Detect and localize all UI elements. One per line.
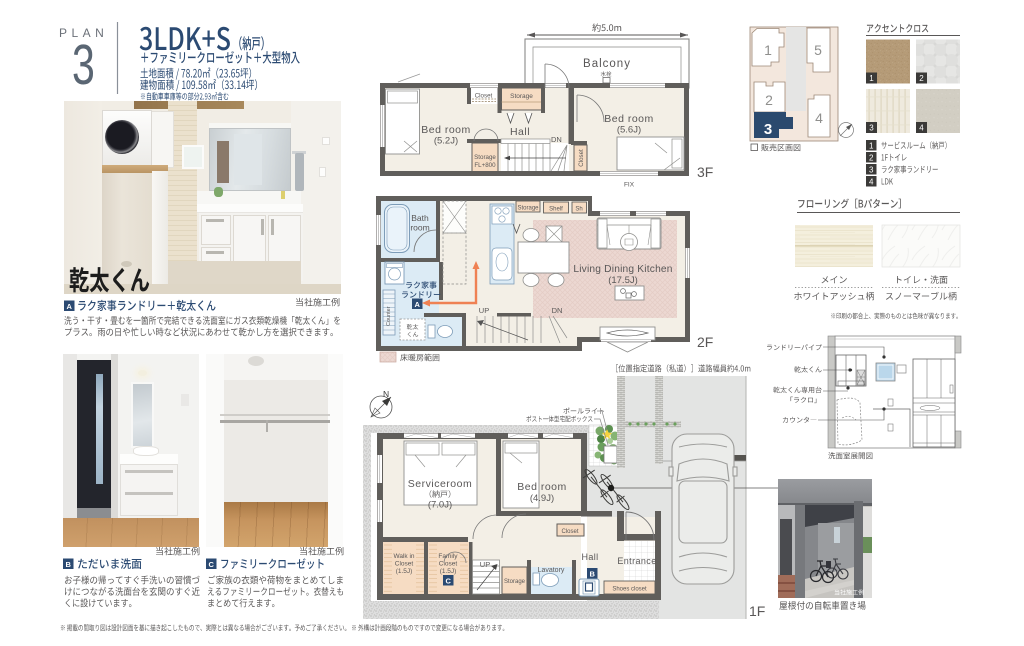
- svg-text:4: 4: [919, 124, 924, 133]
- svg-text:Hall: Hall: [581, 552, 598, 562]
- svg-text:2: 2: [919, 74, 924, 83]
- svg-text:Storage: Storage: [517, 206, 539, 212]
- svg-text:Closet: Closet: [395, 561, 414, 568]
- svg-text:Entrance: Entrance: [617, 556, 656, 566]
- svg-text:Walk in: Walk in: [393, 553, 414, 560]
- svg-text:Bed room: Bed room: [517, 481, 567, 493]
- svg-text:Lavatory: Lavatory: [538, 567, 565, 574]
- svg-text:Closet: Closet: [561, 529, 578, 535]
- svg-text:Balcony: Balcony: [583, 58, 631, 70]
- svg-text:(7.0J): (7.0J): [428, 500, 452, 511]
- svg-text:(5.6J): (5.6J): [617, 125, 641, 136]
- svg-text:1: 1: [869, 142, 874, 151]
- svg-text:1: 1: [764, 42, 772, 58]
- svg-text:A: A: [414, 300, 420, 309]
- svg-text:(5.2J): (5.2J): [434, 136, 458, 147]
- svg-text:Storage: Storage: [504, 579, 526, 585]
- svg-text:Closet: Closet: [475, 93, 493, 100]
- svg-text:FIX: FIX: [624, 182, 635, 189]
- svg-text:(1.5J): (1.5J): [396, 568, 413, 575]
- svg-text:4: 4: [869, 178, 874, 187]
- svg-text:(17.5J): (17.5J): [608, 275, 638, 286]
- svg-text:Storage: Storage: [474, 154, 496, 161]
- svg-text:3F: 3F: [697, 164, 713, 180]
- svg-text:Hall: Hall: [510, 126, 530, 138]
- svg-text:DN: DN: [551, 135, 562, 144]
- svg-text:FL+800: FL+800: [474, 162, 496, 169]
- svg-text:1: 1: [869, 74, 874, 83]
- svg-text:4: 4: [815, 110, 823, 126]
- svg-text:5: 5: [814, 42, 822, 58]
- svg-text:3: 3: [764, 121, 772, 138]
- svg-text:2F: 2F: [697, 334, 713, 350]
- svg-text:3: 3: [869, 166, 874, 175]
- svg-text:2: 2: [869, 154, 874, 163]
- svg-text:Bed room: Bed room: [421, 124, 471, 136]
- svg-text:Bath: Bath: [411, 213, 429, 223]
- svg-text:(1.5J): (1.5J): [440, 568, 457, 575]
- svg-text:B: B: [65, 560, 71, 569]
- svg-text:Shoes closet: Shoes closet: [612, 587, 647, 593]
- svg-text:Serviceroom: Serviceroom: [408, 478, 472, 490]
- svg-text:C: C: [208, 560, 214, 569]
- svg-text:C: C: [445, 577, 451, 586]
- svg-text:Counter: Counter: [386, 306, 392, 326]
- svg-text:(4.9J): (4.9J): [530, 493, 554, 504]
- svg-text:Closet: Closet: [578, 149, 585, 167]
- svg-text:Bed room: Bed room: [604, 113, 654, 125]
- svg-text:Living Dining Kitchen: Living Dining Kitchen: [573, 264, 672, 275]
- svg-text:A: A: [66, 302, 72, 311]
- svg-text:N: N: [383, 389, 389, 399]
- svg-text:3: 3: [72, 32, 95, 96]
- svg-text:3: 3: [869, 124, 874, 133]
- svg-text:1F: 1F: [749, 603, 765, 619]
- svg-text:room: room: [410, 223, 429, 233]
- svg-text:DN: DN: [552, 306, 563, 315]
- svg-text:2: 2: [765, 92, 773, 108]
- svg-text:UP: UP: [480, 560, 490, 569]
- svg-text:B: B: [589, 570, 595, 579]
- svg-text:Shelf: Shelf: [549, 207, 563, 213]
- svg-text:UP: UP: [479, 306, 489, 315]
- svg-text:Storage: Storage: [510, 93, 533, 100]
- svg-text:Closet: Closet: [439, 561, 458, 568]
- svg-text:Sh: Sh: [575, 207, 582, 213]
